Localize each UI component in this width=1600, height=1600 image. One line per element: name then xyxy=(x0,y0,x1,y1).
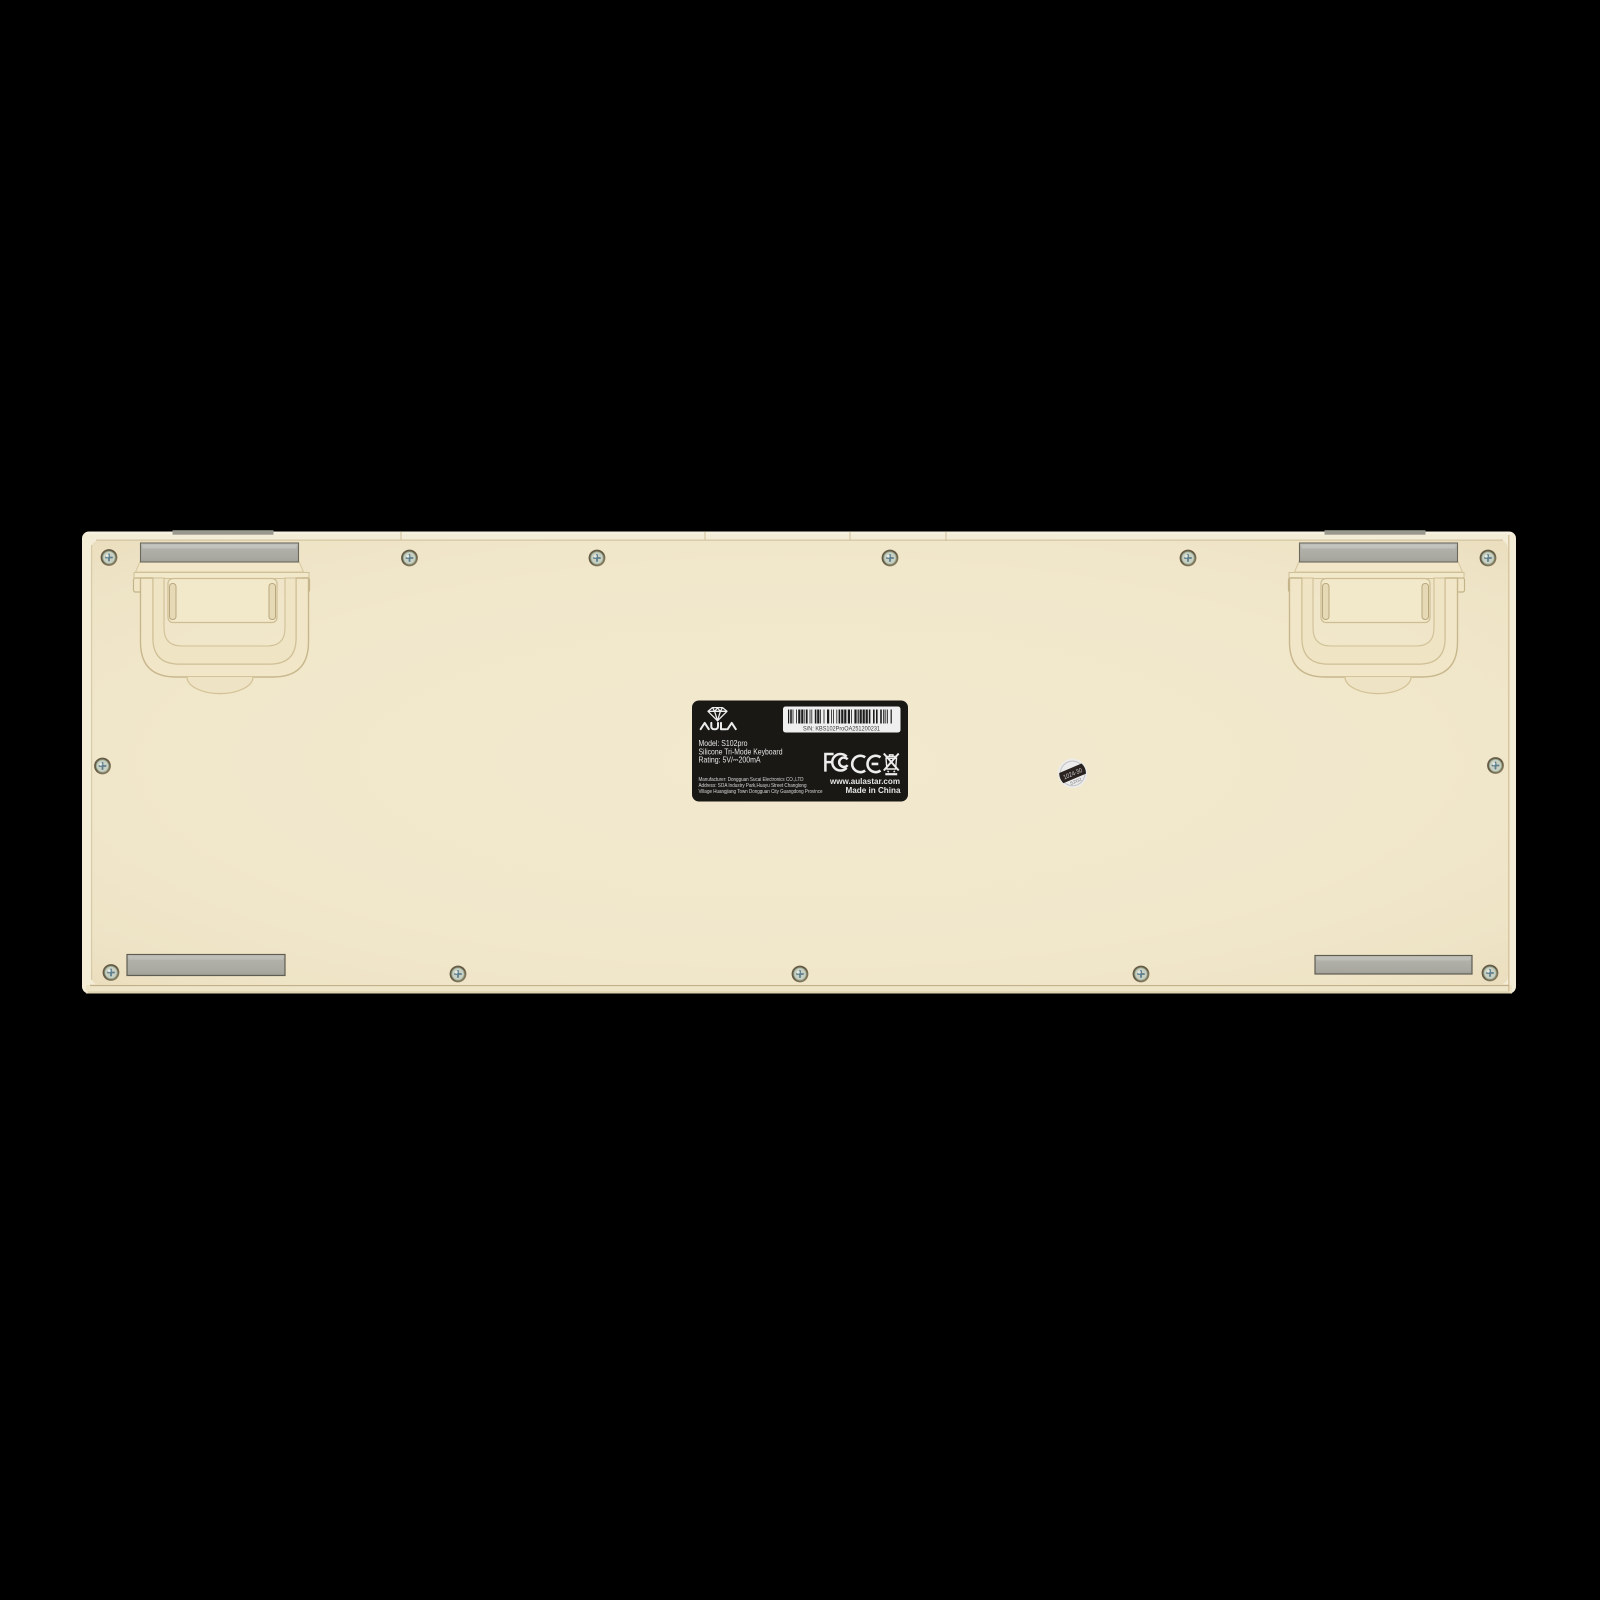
svg-text:Village Huangjiang Town Donggu: Village Huangjiang Town Dongguan City Gu… xyxy=(699,789,823,795)
svg-text:Rating: 5V/⎓200mA: Rating: 5V/⎓200mA xyxy=(699,756,761,765)
svg-text:S/N: KBS102ProOA251200231: S/N: KBS102ProOA251200231 xyxy=(803,725,880,732)
svg-text:Made in China: Made in China xyxy=(846,785,901,795)
